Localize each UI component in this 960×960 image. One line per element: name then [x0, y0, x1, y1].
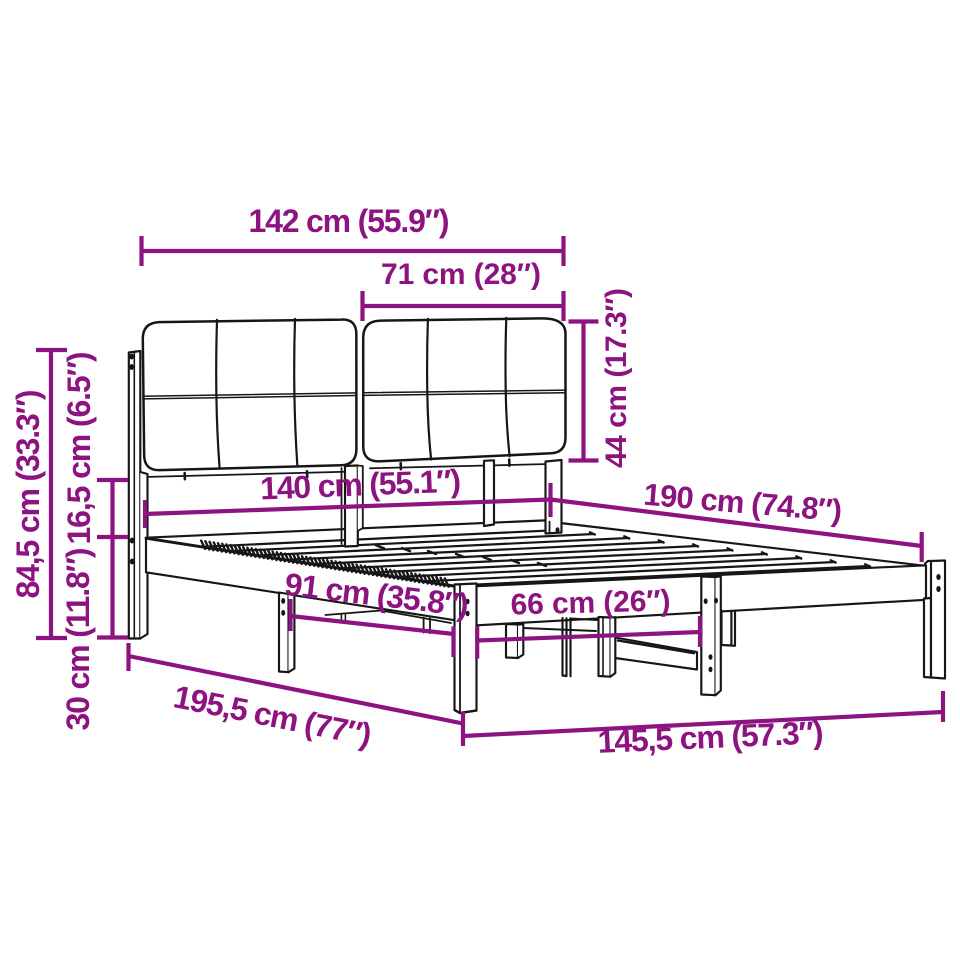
- svg-text:84,5 cm (33.3″): 84,5 cm (33.3″): [10, 390, 46, 599]
- svg-text:44 cm (17.3″): 44 cm (17.3″): [600, 288, 633, 468]
- svg-text:66 cm (26″): 66 cm (26″): [510, 584, 671, 621]
- svg-text:71 cm (28″): 71 cm (28″): [381, 258, 541, 291]
- svg-text:16,5 cm (6.5″): 16,5 cm (6.5″): [61, 352, 97, 545]
- svg-text:30 cm (11.8″): 30 cm (11.8″): [60, 548, 96, 731]
- svg-text:142 cm (55.9″): 142 cm (55.9″): [249, 203, 450, 239]
